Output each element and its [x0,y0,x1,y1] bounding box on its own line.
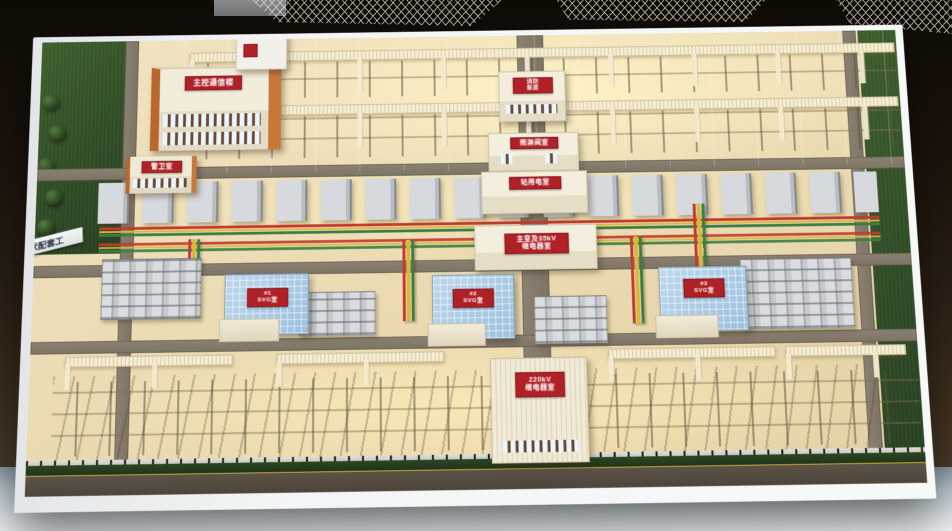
model-board: 主控通信楼 警卫室 消防 泵房 [14,25,936,513]
svg-room-3-building: #3 SVG室 [658,266,749,332]
guard-room-sign: 警卫室 [142,161,183,174]
relay-room-220kv-building: 220kV 继电器室 [490,357,590,464]
small-north-building-sign [243,44,257,58]
svg3-sign-line2: SVG室 [694,288,715,295]
relay-room-35kv-building: 主变及35kV 继电器室 [474,224,598,271]
small-north-building [236,34,288,70]
phase-riser-pipes [630,236,645,323]
relay220-sign-line2: 继电器室 [525,384,555,392]
window-row [503,440,579,453]
fire-pump-house: 消防 泵房 [498,71,566,123]
deluge-valve-sign: 雨淋阀室 [510,137,558,150]
fire-pump-sign: 消防 泵房 [513,77,553,94]
equipment-racks [299,291,376,336]
guard-room-building: 警卫室 [126,156,197,194]
lit-window [545,153,557,163]
svg-room-1-sign: #1 SVG室 [247,288,288,308]
main-control-building: 主控通信楼 [150,66,281,151]
svg1-lower-wall [219,318,279,342]
relay-room-35kv-sign: 主变及35kV 继电器室 [504,233,569,255]
main-control-sign-text: 主控通信楼 [193,79,234,88]
lit-window [501,154,513,164]
svg-room-1-building: #1 SVG室 [224,273,309,335]
relay35-sign-line2: 继电器室 [522,243,551,251]
phase-riser-pipes [402,240,414,322]
gantry-legs-south [277,359,443,387]
station-power-sign: 站用电室 [509,176,561,190]
svg-room-3-sign: #3 SVG室 [683,278,725,298]
gantry-legs-south [608,354,775,382]
svg2-sign-line2: SVG室 [463,298,483,305]
station-platform: 主控通信楼 警卫室 消防 泵房 [25,30,928,497]
equipment-racks [100,258,201,320]
svg2-lower-wall [428,323,487,347]
relay-room-220kv-sign: 220kV 继电器室 [515,372,565,398]
svg3-lower-wall [655,314,718,338]
window-row [506,104,558,114]
main-control-sign: 主控通信楼 [185,75,242,90]
window-row [132,178,186,188]
deluge-valve-room: 雨淋阀室 [488,132,579,172]
gantry-legs-south [65,362,232,390]
svg-room-2-building: #2 SVG室 [432,274,515,340]
station-power-building: 站用电室 [481,170,588,214]
window-row [163,113,261,127]
equipment-racks [740,257,855,329]
fire-pump-sign-line2: 泵房 [527,85,540,91]
substation-model-photo: 主控通信楼 警卫室 消防 泵房 [0,0,952,531]
gantry-legs-south [786,352,906,379]
safety-net-canopy [556,0,766,22]
safety-net-canopy [252,0,502,26]
station-power-sign-text: 站用电室 [521,179,550,187]
equipment-racks [534,295,608,344]
window-row [162,131,260,145]
svg-room-2-sign: #2 SVG室 [453,288,494,308]
guard-room-sign-text: 警卫室 [151,163,173,170]
deluge-valve-sign-text: 雨淋阀室 [520,139,549,146]
svg1-sign-line2: SVG室 [257,297,277,304]
